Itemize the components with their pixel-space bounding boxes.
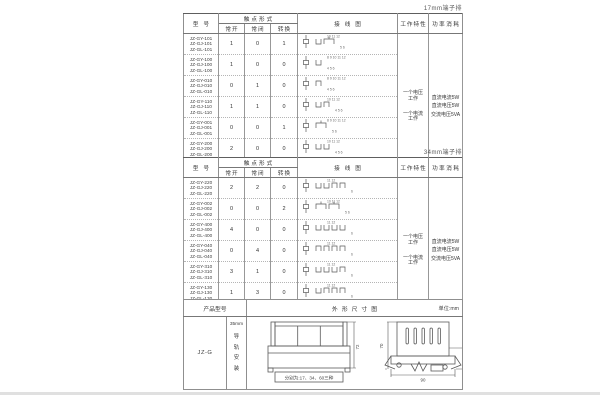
contact-count-nc: 2: [245, 178, 271, 199]
model-number: JZ-GL-002: [184, 212, 218, 217]
contact-count-nc: 0: [245, 55, 271, 76]
model-number: JZ-GL-010: [184, 89, 218, 94]
model-number: JZ-GL-400: [184, 233, 218, 238]
terminal-numbers: 10 11 12: [327, 35, 340, 39]
working-note: 一个电流工作: [403, 112, 423, 123]
model-cell: JZ-GY-100JZ-GJ-100JZ-GL-100: [184, 55, 219, 76]
front-view-drawing: 分别为:17、34、60三种 72: [257, 320, 369, 386]
wiring-diagram: 11 126: [299, 241, 397, 256]
mount-char: 装: [227, 366, 246, 372]
contact-form-header: 触点形式: [219, 14, 298, 24]
side-view-drawing: 70 35 90: [373, 320, 463, 386]
changeover-header: 转换: [271, 168, 298, 178]
wiring-diagram-cell: 11 126: [298, 262, 398, 283]
contact-count-co: 2: [271, 199, 298, 220]
terminal-numbers: 6: [351, 253, 353, 256]
model-cell: JZ-GY-310JZ-GJ-310JZ-GL-310: [184, 262, 219, 283]
contact-count-no: 1: [219, 55, 245, 76]
contact-count-co: 0: [271, 76, 298, 97]
model-number: JZ-GL-101: [184, 47, 218, 52]
outline-drawing-header: 外形尺寸图 单位:mm: [247, 300, 463, 317]
power-consumption-header: 功率消耗: [429, 14, 463, 34]
terminal-34mm-label: 34mm端子排: [183, 147, 462, 156]
contact-count-no: 1: [219, 97, 245, 118]
wiring-diagram: 11 126: [299, 220, 397, 235]
side-view-lines: [385, 322, 463, 377]
contact-count-co: 0: [271, 262, 298, 283]
model-column-header: 型号: [184, 158, 219, 178]
mount-char: 轨: [227, 345, 246, 351]
terminal-numbers: 8 9 10 11 12: [327, 77, 346, 81]
contact-count-no: 0: [219, 241, 245, 262]
terminal-numbers: 8 9 10 11 12: [327, 119, 346, 123]
front-note-label: 分别为:17、34、60三种: [285, 374, 334, 381]
model-cell: JZ-GY-010JZ-GJ-010JZ-GL-010: [184, 76, 219, 97]
wiring-diagram-cell: 11 126: [298, 241, 398, 262]
model-number: JZ-GL-310: [184, 275, 218, 280]
working-note: 一个电流工作: [403, 256, 423, 267]
power-note: 交流电压5VA: [430, 257, 461, 263]
contact-count-nc: 0: [245, 34, 271, 55]
wiring-diagram: 8 9 10 11 124 5 6: [299, 76, 397, 91]
terminal-numbers: 6: [351, 232, 353, 235]
wiring-diagram-header: 接线图: [298, 14, 398, 34]
terminal-numbers: 11 12: [327, 179, 335, 183]
terminal-numbers: 11 12: [327, 221, 335, 225]
contact-count-co: 0: [271, 97, 298, 118]
terminal-numbers: 10 11 12: [327, 200, 340, 204]
wiring-diagram: 8 9 10 11 124 5 6: [299, 55, 397, 70]
contact-count-no: 0: [219, 76, 245, 97]
normally-open-header: 常开: [219, 168, 245, 178]
power-note: 直流电流5W: [430, 96, 461, 102]
wiring-diagram-cell: 8 9 10 11 125 6: [298, 118, 398, 139]
working-note: 一个电压工作: [403, 235, 423, 246]
terminal-numbers: 5 6: [345, 211, 350, 214]
mount-type-label: 35mm导轨安装: [227, 317, 247, 390]
contact-count-no: 0: [219, 118, 245, 139]
model-column-header: 型号: [184, 14, 219, 34]
power-note: 直流电流5W: [430, 240, 461, 246]
side-height-dim-label: 70: [379, 343, 384, 348]
contact-count-co: 0: [271, 220, 298, 241]
terminal-numbers: 8 9 10 11 12: [327, 56, 346, 60]
terminal-numbers: 10 11 12: [327, 98, 340, 102]
datasheet-page: { "labels": { "corner17": "17mm端子排", "co…: [0, 0, 600, 400]
mount-char: 安: [227, 355, 246, 361]
wiring-diagram-cell: 10 11 124 5 6: [298, 97, 398, 118]
model-number: JZ-GL-001: [184, 131, 218, 136]
contact-count-nc: 0: [245, 199, 271, 220]
wiring-diagram-cell: 11 126: [298, 220, 398, 241]
contact-count-co: 1: [271, 118, 298, 139]
wiring-diagram: 10 11 125 6: [299, 199, 397, 214]
contact-count-co: 1: [271, 34, 298, 55]
wiring-diagram: 11 126: [299, 262, 397, 277]
power-note: 直流电压5W: [430, 248, 461, 254]
terminal-numbers: 4 5 6: [335, 109, 343, 112]
wiring-diagram-cell: 10 11 125 6: [298, 34, 398, 55]
terminal-numbers: 5 6: [340, 46, 345, 49]
product-model-value: JZ-G: [184, 317, 227, 390]
table-row: JZ-GY-101JZ-GJ-101JZ-GL-10110110 11 125 …: [184, 34, 463, 55]
wiring-diagram: 8 9 10 11 125 6: [299, 118, 397, 133]
contact-count-co: 0: [271, 178, 298, 199]
terminal-numbers: 6: [351, 190, 353, 193]
working-characteristic-header: 工作特性: [398, 158, 429, 178]
power-note: 交流电压5VA: [430, 113, 461, 119]
wiring-diagram: 10 11 124 5 6: [299, 97, 397, 112]
product-model-header: 产品型号: [184, 300, 247, 317]
power-note: 直流电压5W: [430, 104, 461, 110]
outline-drawings-cell: 分别为:17、34、60三种 72: [247, 317, 463, 390]
changeover-header: 转换: [271, 24, 298, 34]
wiring-diagram-cell: 8 9 10 11 124 5 6: [298, 76, 398, 97]
contact-count-co: 0: [271, 241, 298, 262]
working-characteristic-header: 工作特性: [398, 14, 429, 34]
mount-size: 35mm: [227, 322, 246, 328]
model-cell: JZ-GY-101JZ-GJ-101JZ-GL-101: [184, 34, 219, 55]
model-cell: JZ-GY-110JZ-GJ-110JZ-GL-110: [184, 97, 219, 118]
wiring-diagram: 11 126: [299, 178, 397, 193]
contact-count-nc: 1: [245, 97, 271, 118]
model-cell: JZ-GY-220JZ-GJ-220JZ-GL-220: [184, 178, 219, 199]
front-height-dim-label: 72: [355, 344, 360, 349]
model-number: JZ-GL-100: [184, 68, 218, 73]
contact-count-nc: 4: [245, 241, 271, 262]
terminal-numbers: 4 5 6: [327, 67, 335, 70]
wiring-diagram: 10 11 125 6: [299, 34, 397, 49]
side-width-dim-label: 90: [421, 378, 426, 383]
outline-table-row: JZ-G 35mm导轨安装 分别: [184, 317, 463, 390]
model-number: JZ-GL-040: [184, 254, 218, 259]
terminal-numbers: 11 12: [327, 284, 335, 288]
terminal-numbers: 11 12: [327, 242, 335, 246]
terminal-numbers: 4 5 6: [327, 88, 335, 91]
model-number: JZ-GL-220: [184, 191, 218, 196]
contact-count-no: 3: [219, 262, 245, 283]
terminal-numbers: 5 6: [332, 130, 337, 133]
contact-count-co: 0: [271, 55, 298, 76]
terminal-numbers: 6: [351, 274, 353, 277]
terminal-17mm-label: 17mm端子排: [183, 3, 462, 12]
normally-closed-header: 常闭: [245, 24, 271, 34]
power-consumption-header: 功率消耗: [429, 158, 463, 178]
contact-count-nc: 0: [245, 118, 271, 139]
model-cell: JZ-GY-002JZ-GJ-002JZ-GL-002: [184, 199, 219, 220]
contact-count-no: 1: [219, 34, 245, 55]
wiring-diagram-header: 接线图: [298, 158, 398, 178]
contact-count-no: 2: [219, 178, 245, 199]
outline-header-label: 外形尺寸图: [332, 307, 381, 313]
mount-char: 导: [227, 334, 246, 340]
contact-count-nc: 1: [245, 262, 271, 283]
outline-dimension-table: 产品型号 外形尺寸图 单位:mm JZ-G 35mm导轨安装: [183, 299, 463, 390]
contact-form-header: 触点形式: [219, 158, 298, 168]
model-cell: JZ-GY-040JZ-GJ-040JZ-GL-040: [184, 241, 219, 262]
model-cell: JZ-GY-001JZ-GJ-001JZ-GL-001: [184, 118, 219, 139]
contact-count-no: 4: [219, 220, 245, 241]
contact-count-no: 0: [219, 199, 245, 220]
front-view-lines: [268, 322, 356, 382]
wiring-diagram-cell: 11 126: [298, 178, 398, 199]
table-row: JZ-GY-220JZ-GJ-220JZ-GL-22022011 126一个电压…: [184, 178, 463, 199]
page-bottom-edge: [0, 392, 600, 395]
model-cell: JZ-GY-400JZ-GJ-400JZ-GL-400: [184, 220, 219, 241]
unit-label: 单位:mm: [439, 305, 459, 312]
wiring-diagram-cell: 10 11 125 6: [298, 199, 398, 220]
working-note: 一个电压工作: [403, 91, 423, 102]
normally-closed-header: 常闭: [245, 168, 271, 178]
terminal-numbers: 11 12: [327, 263, 335, 267]
normally-open-header: 常开: [219, 24, 245, 34]
terminal-numbers: 6: [351, 295, 353, 298]
contact-count-nc: 0: [245, 220, 271, 241]
wiring-diagram: 11 126: [299, 283, 397, 298]
terminal-numbers: 10 11 12: [327, 140, 340, 144]
contact-count-nc: 1: [245, 76, 271, 97]
model-number: JZ-GL-110: [184, 110, 218, 115]
wiring-diagram-cell: 8 9 10 11 124 5 6: [298, 55, 398, 76]
